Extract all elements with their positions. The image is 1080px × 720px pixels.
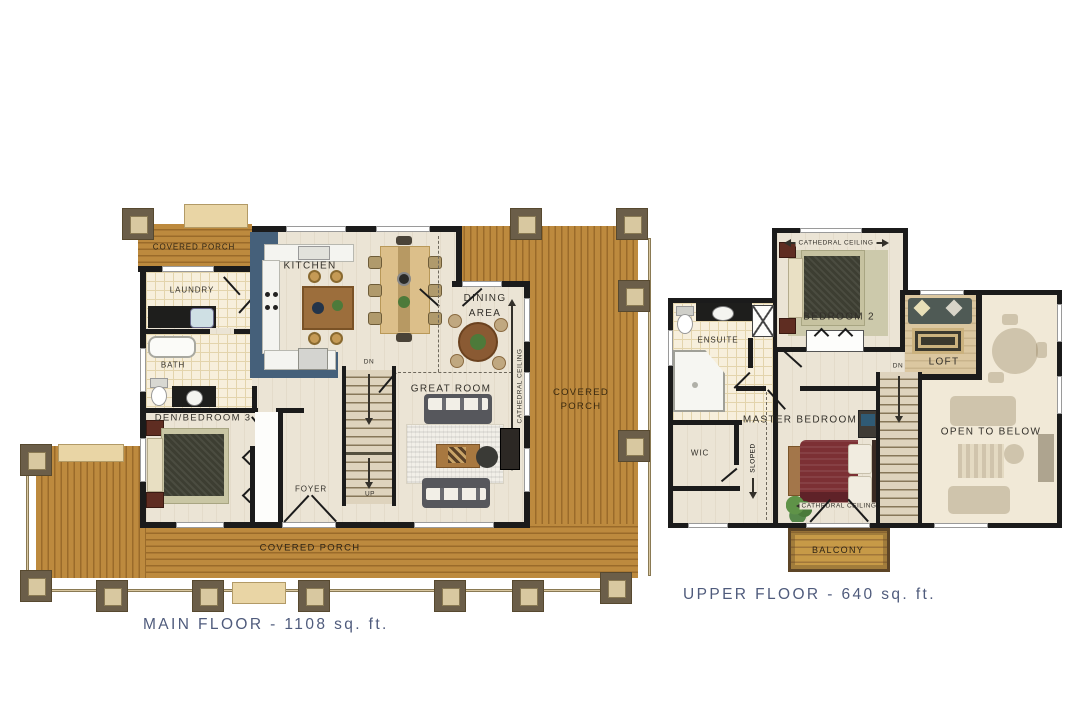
ensuite-bottom-wall bbox=[670, 420, 742, 425]
wic-right-wall bbox=[734, 425, 739, 465]
arrow-down-icon bbox=[749, 492, 757, 499]
ghost-stove bbox=[1038, 434, 1054, 482]
upper-floor-title: UPPER FLOOR - 640 sq. ft. bbox=[683, 586, 936, 604]
balcony-label: BALCONY bbox=[812, 545, 864, 555]
stair-wall bbox=[876, 372, 880, 523]
open-to-below-label: OPEN TO BELOW bbox=[941, 427, 1041, 438]
toilet-bowl bbox=[677, 314, 693, 334]
window bbox=[688, 523, 728, 528]
shower-drain bbox=[692, 382, 698, 388]
ghost-round-table bbox=[992, 328, 1038, 374]
wic-label: WIC bbox=[691, 449, 709, 458]
ensuite-sink bbox=[712, 306, 734, 321]
ghost-rug bbox=[958, 444, 1004, 478]
floor-plan-canvas: COVERED PORCH LAUNDRY BATH DEN/BEDROOM 3 bbox=[0, 0, 1080, 720]
ghost-sofa bbox=[950, 396, 1016, 426]
master-bedroom-label: MASTER BEDROOM bbox=[743, 415, 857, 426]
ghost-ottoman bbox=[1004, 444, 1024, 464]
ghost-sofa bbox=[948, 486, 1010, 514]
window bbox=[920, 290, 964, 295]
b2-nightstand bbox=[779, 318, 796, 334]
ensuite-wall bbox=[748, 338, 753, 368]
slope-dash-line bbox=[766, 392, 767, 520]
arrow-left-icon bbox=[784, 239, 791, 247]
loft-label: LOFT bbox=[929, 357, 960, 368]
ghost-chair bbox=[1036, 342, 1047, 358]
loft-rug bbox=[912, 328, 964, 354]
ghost-chair bbox=[1002, 314, 1018, 325]
stair-arrow-line bbox=[898, 376, 900, 416]
arrow-down-icon bbox=[895, 416, 903, 423]
window bbox=[1057, 376, 1062, 414]
loft-right-wall bbox=[976, 290, 982, 380]
master-pillow bbox=[848, 476, 872, 504]
sloped-arrow-line bbox=[752, 478, 754, 492]
cathedral-b2-label: CATHEDRAL CEILING bbox=[796, 240, 877, 247]
window bbox=[1057, 304, 1062, 342]
linen-closet bbox=[752, 305, 774, 337]
sloped-label: SLOPED bbox=[750, 443, 757, 472]
bedroom2-label: BEDROOM 2 bbox=[803, 312, 875, 323]
master-top-wall2 bbox=[800, 386, 878, 391]
wic-bottom-wall bbox=[670, 486, 740, 491]
master-pillow bbox=[848, 444, 872, 474]
ghost-chair bbox=[988, 372, 1004, 383]
upper-floor-plan: BEDROOM 2 CATHEDRAL CEILING ENSUITE WIC bbox=[0, 0, 1080, 720]
window bbox=[800, 228, 862, 233]
dresser-art bbox=[861, 414, 875, 426]
window bbox=[668, 330, 673, 366]
b2-bed-duvet bbox=[804, 256, 860, 318]
master-top-wall bbox=[736, 386, 766, 391]
arrow-right-icon bbox=[882, 239, 889, 247]
upper-dn-label: DN bbox=[893, 363, 903, 370]
window bbox=[934, 523, 988, 528]
cathedral-master-label: CATHEDRAL CEILING bbox=[800, 503, 879, 510]
stair-wall bbox=[918, 372, 922, 523]
b2-headboard bbox=[788, 258, 803, 318]
ensuite-label: ENSUITE bbox=[698, 336, 739, 345]
